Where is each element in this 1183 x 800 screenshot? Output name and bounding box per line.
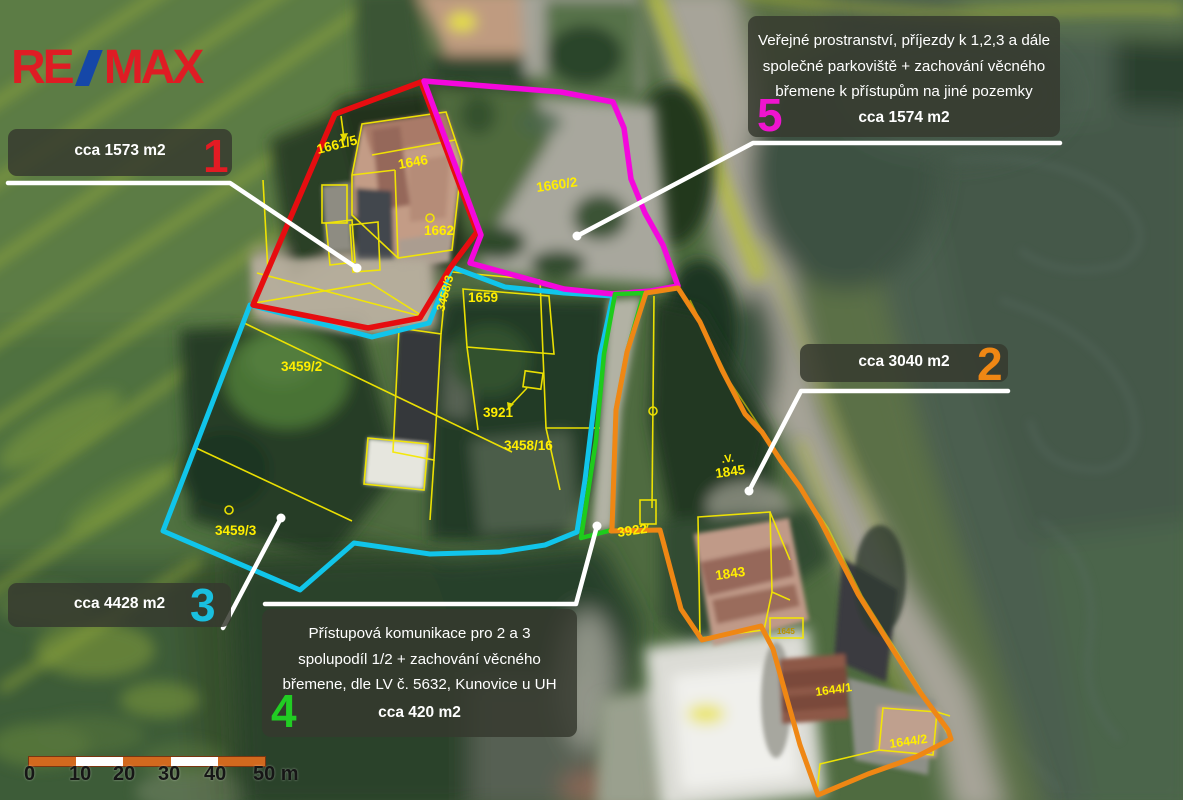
svg-text:1662: 1662 — [424, 223, 454, 238]
svg-text:3459/3: 3459/3 — [215, 523, 257, 538]
svg-text:1645: 1645 — [777, 627, 795, 636]
svg-text:3921: 3921 — [483, 405, 514, 420]
svg-text:3458/16: 3458/16 — [504, 438, 553, 453]
svg-text:.V.: .V. — [721, 452, 735, 466]
svg-text:3459/2: 3459/2 — [281, 359, 322, 374]
svg-text:1659: 1659 — [468, 290, 498, 305]
